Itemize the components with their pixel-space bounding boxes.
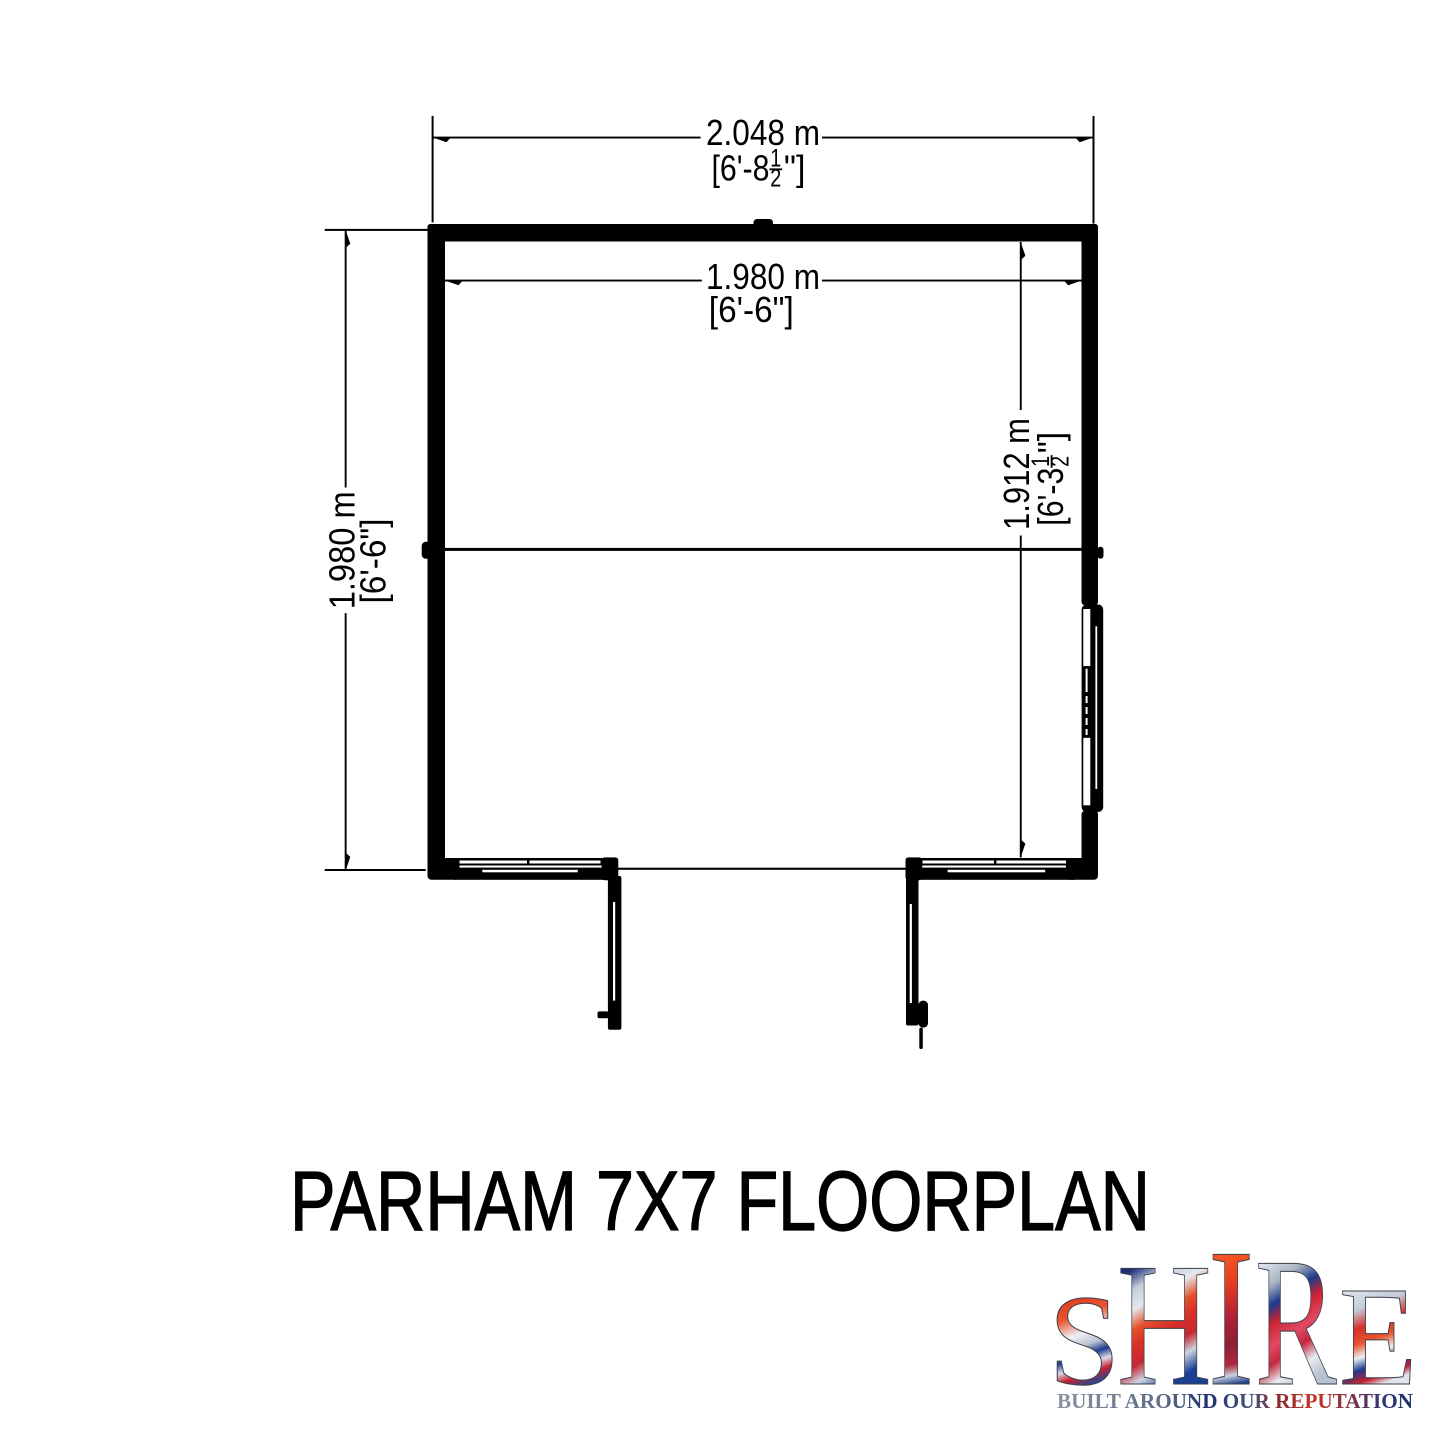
svg-text:PARHAM 7X7 FLOORPLAN: PARHAM 7X7 FLOORPLAN: [290, 1154, 1150, 1248]
svg-text:2: 2: [1047, 456, 1075, 467]
svg-text:BUILT AROUND OUR REPUTATION: BUILT AROUND OUR REPUTATION: [1057, 1389, 1413, 1413]
svg-text:2: 2: [770, 164, 781, 192]
svg-text:[6'-6"]: [6'-6"]: [353, 519, 394, 604]
svg-text:[6'-3: [6'-3: [1030, 468, 1071, 526]
svg-text:[6'-8: [6'-8: [712, 148, 770, 189]
svg-text:[6'-6"]: [6'-6"]: [709, 289, 794, 330]
svg-text:"]: "]: [1030, 432, 1071, 454]
svg-text:"]: "]: [784, 148, 806, 189]
